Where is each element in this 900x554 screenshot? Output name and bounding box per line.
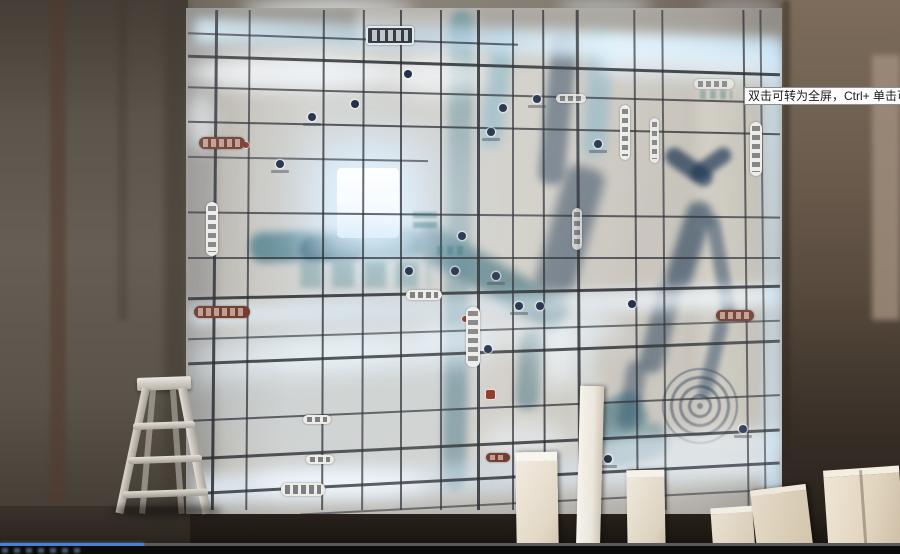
map-river xyxy=(696,318,729,401)
foreground-board xyxy=(515,452,559,554)
map-river xyxy=(514,329,546,411)
map-road-line xyxy=(440,10,442,510)
map-landmark-marker xyxy=(451,267,459,275)
video-control-bar[interactable] xyxy=(0,546,900,554)
foreground-board xyxy=(576,386,604,554)
left-wall xyxy=(0,0,188,554)
map-landmark-marker xyxy=(404,70,412,78)
map-river xyxy=(442,10,474,490)
foreground-board xyxy=(626,470,665,554)
screenshot-root: 双击可转为全屏，Ctrl+ 单击可转为 xyxy=(0,0,900,554)
foreground-board xyxy=(823,465,900,554)
map-road-line xyxy=(188,429,779,461)
map-landmark-marker xyxy=(484,345,492,353)
map-road-line xyxy=(188,55,780,77)
map-river xyxy=(662,198,715,294)
map-landmark-marker xyxy=(351,100,359,108)
map-road-line xyxy=(188,257,780,259)
map-road-label xyxy=(750,122,762,176)
map-road-label xyxy=(466,307,480,367)
map-landmark-marker xyxy=(739,425,747,433)
map-area-label xyxy=(700,90,732,99)
map-road-label xyxy=(716,310,754,321)
map-road-line xyxy=(361,10,365,510)
map-river xyxy=(705,215,737,320)
map-landmark-marker xyxy=(604,455,612,463)
map-road-label xyxy=(303,415,331,424)
map-road-label xyxy=(694,79,734,89)
map-road-line xyxy=(188,462,779,496)
map-landmark-marker xyxy=(487,128,495,136)
map-road-label xyxy=(281,483,325,496)
map-road-line xyxy=(245,10,250,510)
map-landmark-marker xyxy=(458,232,466,240)
map-road-line xyxy=(188,320,780,341)
map-road-line xyxy=(188,340,780,366)
map-landmark-marker xyxy=(536,302,544,310)
illuminated-map-wall xyxy=(186,8,782,514)
map-road-line xyxy=(477,10,480,510)
map-landmark-marker xyxy=(405,267,413,275)
player-tooltip: 双击可转为全屏，Ctrl+ 单击可转为 xyxy=(744,87,900,105)
map-road-label xyxy=(572,208,582,250)
map-landmark-marker xyxy=(594,140,602,148)
map-road-line xyxy=(759,10,766,510)
map-river xyxy=(637,280,683,375)
map-road-label xyxy=(366,26,414,45)
map-landmark-marker xyxy=(492,272,500,280)
video-controls-partial xyxy=(2,548,82,553)
map-landmark-marker xyxy=(533,95,541,103)
map-landmark-marker xyxy=(486,390,495,399)
map-road-label xyxy=(199,137,245,149)
map-top-shade xyxy=(476,8,782,40)
map-road-label xyxy=(556,94,586,103)
map-landmark-marker xyxy=(515,302,523,310)
map-road-line xyxy=(188,156,428,162)
map-road-label xyxy=(306,455,334,464)
map-road-label xyxy=(620,105,630,160)
led-glow xyxy=(540,320,580,390)
led-glow xyxy=(598,45,781,81)
map-landmark-marker xyxy=(276,160,284,168)
map-road-line xyxy=(512,10,514,510)
map-road-label xyxy=(406,290,442,300)
map-road-label xyxy=(650,118,659,163)
map-road-line xyxy=(188,394,780,422)
map-landmark-marker xyxy=(628,300,636,308)
map-road-label xyxy=(206,202,218,256)
map-road-line xyxy=(211,10,218,510)
map-road-line xyxy=(400,10,402,510)
map-road-label xyxy=(194,306,250,318)
map-landmark-marker xyxy=(308,113,316,121)
map-landmark-marker xyxy=(499,104,507,112)
map-road-label xyxy=(486,453,510,462)
glass-reflection xyxy=(300,262,430,288)
